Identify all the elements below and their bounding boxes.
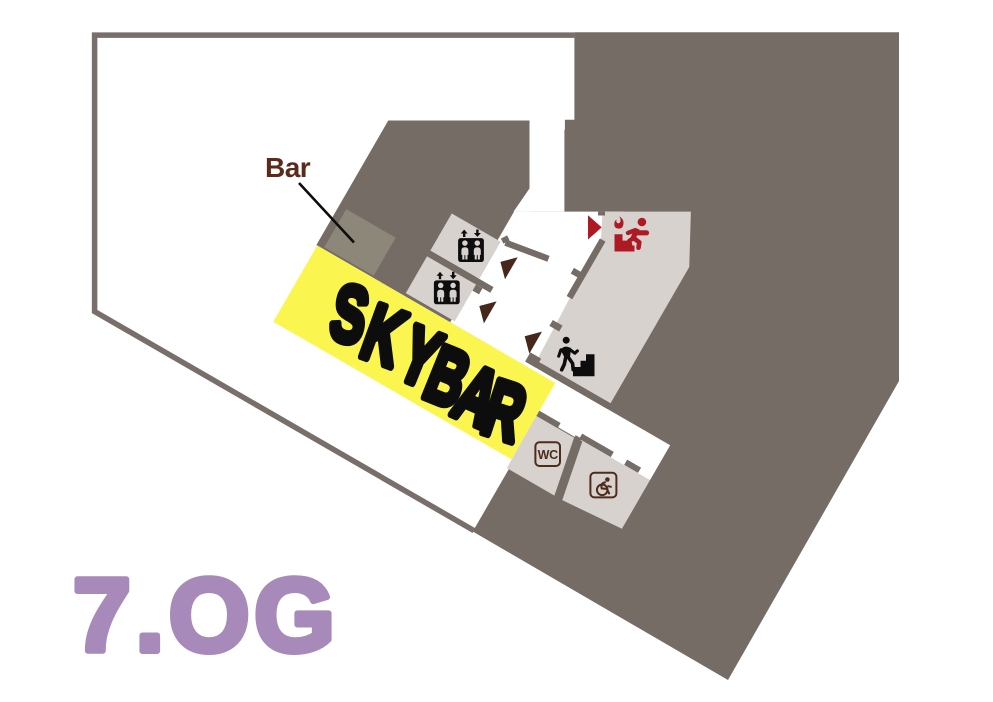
svg-text:Bar: Bar	[265, 152, 311, 183]
svg-text:7.OG: 7.OG	[73, 558, 340, 674]
svg-text:WC: WC	[538, 448, 558, 462]
